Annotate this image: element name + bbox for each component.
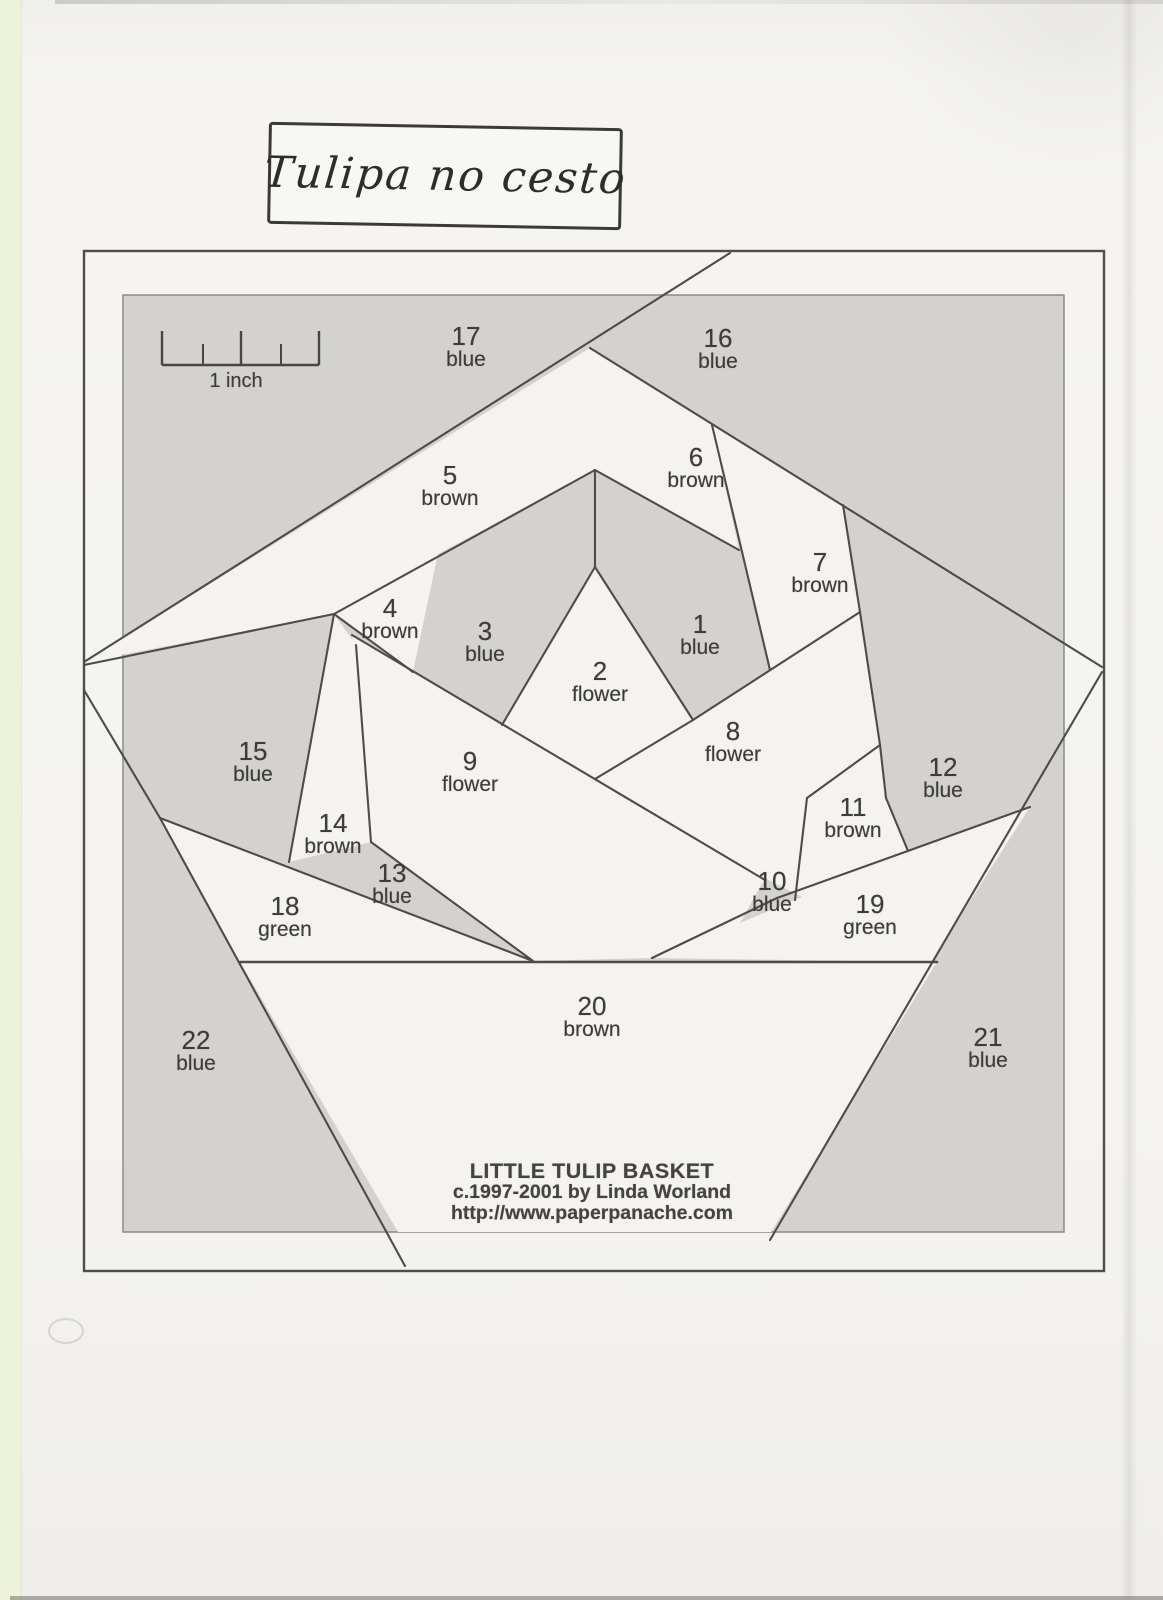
piece-color: green <box>843 917 897 938</box>
piece-color: blue <box>176 1053 216 1074</box>
piece-number: 5 <box>421 463 478 488</box>
piece-label-19: 19green <box>843 892 897 938</box>
piece-color: blue <box>372 886 412 907</box>
scan-bottom-edge <box>10 1596 1163 1600</box>
piece-color: blue <box>465 644 505 665</box>
piece-number: 2 <box>572 659 628 684</box>
piece-number: 10 <box>752 869 792 894</box>
credit-title: LITTLE TULIP BASKET <box>451 1160 733 1182</box>
piece-color: blue <box>752 894 792 915</box>
piece-label-20: 20brown <box>563 994 620 1040</box>
piece-label-16: 16blue <box>698 326 738 372</box>
scan-top-edge <box>55 0 1163 4</box>
piece-color: blue <box>923 780 963 801</box>
piece-number: 15 <box>233 739 273 764</box>
piece-label-4: 4brown <box>361 596 418 642</box>
piece-color: blue <box>680 637 720 658</box>
piece-label-22: 22blue <box>176 1028 216 1074</box>
piece-number: 3 <box>465 619 505 644</box>
piece-number: 20 <box>563 994 620 1019</box>
piece-label-18: 18green <box>258 894 312 940</box>
piece-number: 18 <box>258 894 312 919</box>
piece-label-6: 6brown <box>667 445 724 491</box>
piece-number: 19 <box>843 892 897 917</box>
piece-color: brown <box>304 836 361 857</box>
piece-color: brown <box>791 575 848 596</box>
piece-label-11: 11brown <box>824 795 881 841</box>
piece-color: blue <box>233 764 273 785</box>
piece-label-2: 2flower <box>572 659 628 705</box>
scanned-page: Tulipa no cesto <box>0 0 1163 1600</box>
piece-number: 1 <box>680 612 720 637</box>
piece-color: brown <box>421 488 478 509</box>
pattern-credit: LITTLE TULIP BASKET c.1997-2001 by Linda… <box>451 1160 733 1224</box>
piece-label-9: 9flower <box>442 749 498 795</box>
piece-number: 16 <box>698 326 738 351</box>
piece-number: 21 <box>968 1025 1008 1050</box>
piece-number: 11 <box>824 795 881 820</box>
piece-color: brown <box>563 1019 620 1040</box>
piece-number: 8 <box>705 719 761 744</box>
piece-label-10: 10blue <box>752 869 792 915</box>
piece-label-12: 12blue <box>923 755 963 801</box>
credit-url: http://www.paperpanache.com <box>451 1203 733 1224</box>
credit-copyright: c.1997-2001 by Linda Worland <box>451 1182 733 1203</box>
piece-label-17: 17blue <box>446 324 486 370</box>
piece-label-8: 8flower <box>705 719 761 765</box>
piece-label-1: 1blue <box>680 612 720 658</box>
piece-color: brown <box>361 621 418 642</box>
piece-number: 6 <box>667 445 724 470</box>
piece-color: blue <box>446 349 486 370</box>
piece-number: 13 <box>372 861 412 886</box>
piece-number: 17 <box>446 324 486 349</box>
piece-label-7: 7brown <box>791 550 848 596</box>
piece-color: blue <box>698 351 738 372</box>
piece-label-14: 14brown <box>304 811 361 857</box>
piece-color: brown <box>824 820 881 841</box>
piece-number: 14 <box>304 811 361 836</box>
piece-color: brown <box>667 470 724 491</box>
piece-label-21: 21blue <box>968 1025 1008 1071</box>
scale-label: 1 inch <box>209 370 262 393</box>
piece-label-15: 15blue <box>233 739 273 785</box>
piece-color: blue <box>968 1050 1008 1071</box>
piece-color: green <box>258 919 312 940</box>
piece-number: 7 <box>791 550 848 575</box>
piece-label-3: 3blue <box>465 619 505 665</box>
piece-number: 4 <box>361 596 418 621</box>
pattern-diagram <box>0 0 1163 1600</box>
piece-color: flower <box>572 684 628 705</box>
piece-color: flower <box>442 774 498 795</box>
piece-number: 9 <box>442 749 498 774</box>
piece-label-5: 5brown <box>421 463 478 509</box>
piece-color: flower <box>705 744 761 765</box>
piece-label-13: 13blue <box>372 861 412 907</box>
piece-number: 22 <box>176 1028 216 1053</box>
piece-number: 12 <box>923 755 963 780</box>
